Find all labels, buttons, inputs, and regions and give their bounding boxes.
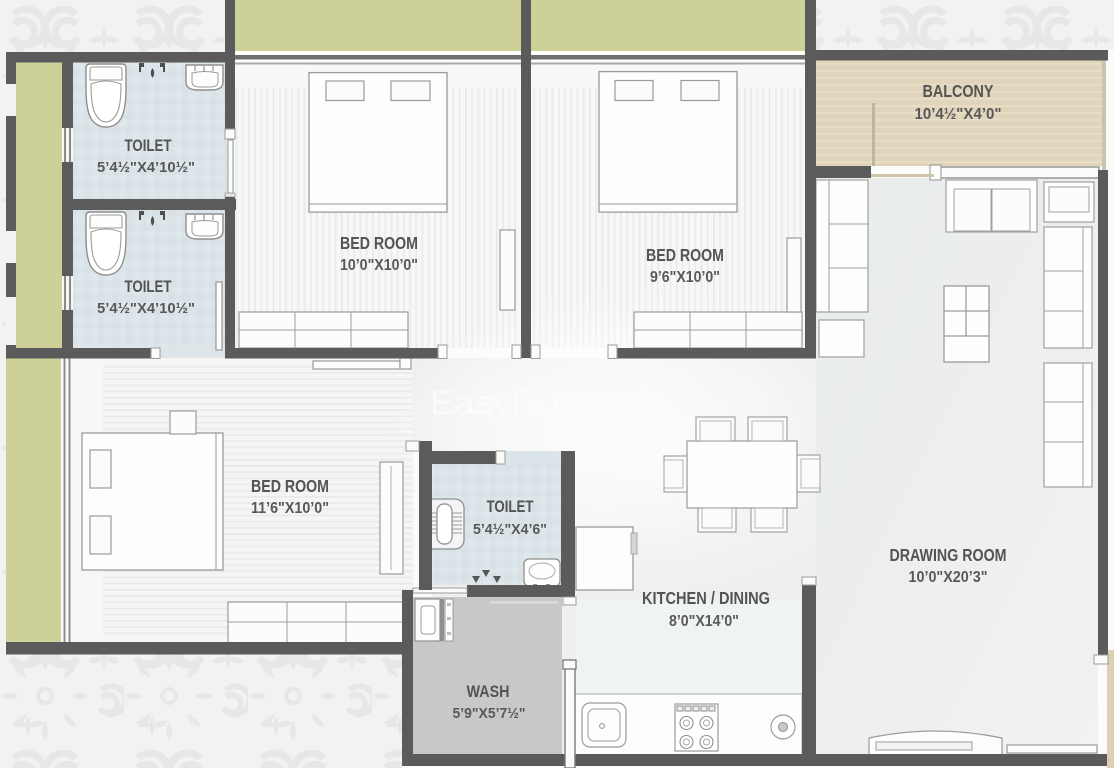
svg-text:5’4½"X4’10½": 5’4½"X4’10½" [97,300,195,317]
svg-text:5’4½"X4’10½": 5’4½"X4’10½" [97,159,195,176]
svg-text:WASH: WASH [467,683,510,701]
svg-text:11’6"X10’0": 11’6"X10’0" [251,500,329,517]
svg-text:TOILET: TOILET [487,498,534,516]
svg-text:BALCONY: BALCONY [923,81,994,101]
svg-text:TOILET: TOILET [125,278,172,296]
svg-text:EasyRooms.in: EasyRooms.in [430,384,667,422]
svg-text:5’4½"X4’6": 5’4½"X4’6" [473,521,547,538]
svg-text:8’0"X14’0": 8’0"X14’0" [669,613,739,630]
svg-text:10’0"X10’0": 10’0"X10’0" [340,257,418,274]
svg-text:10’0"X20’3": 10’0"X20’3" [909,569,988,586]
svg-text:TOILET: TOILET [125,137,172,155]
svg-text:10’4½"X4’0": 10’4½"X4’0" [915,106,1002,123]
svg-text:DRAWING ROOM: DRAWING ROOM [890,545,1007,565]
svg-text:5’9"X5’7½": 5’9"X5’7½" [453,705,526,722]
svg-text:KITCHEN / DINING: KITCHEN / DINING [642,588,770,608]
svg-text:BED ROOM: BED ROOM [646,245,724,265]
svg-text:BED ROOM: BED ROOM [251,476,329,496]
svg-text:9’6"X10’0": 9’6"X10’0" [650,269,720,286]
svg-text:BED ROOM: BED ROOM [340,233,418,253]
